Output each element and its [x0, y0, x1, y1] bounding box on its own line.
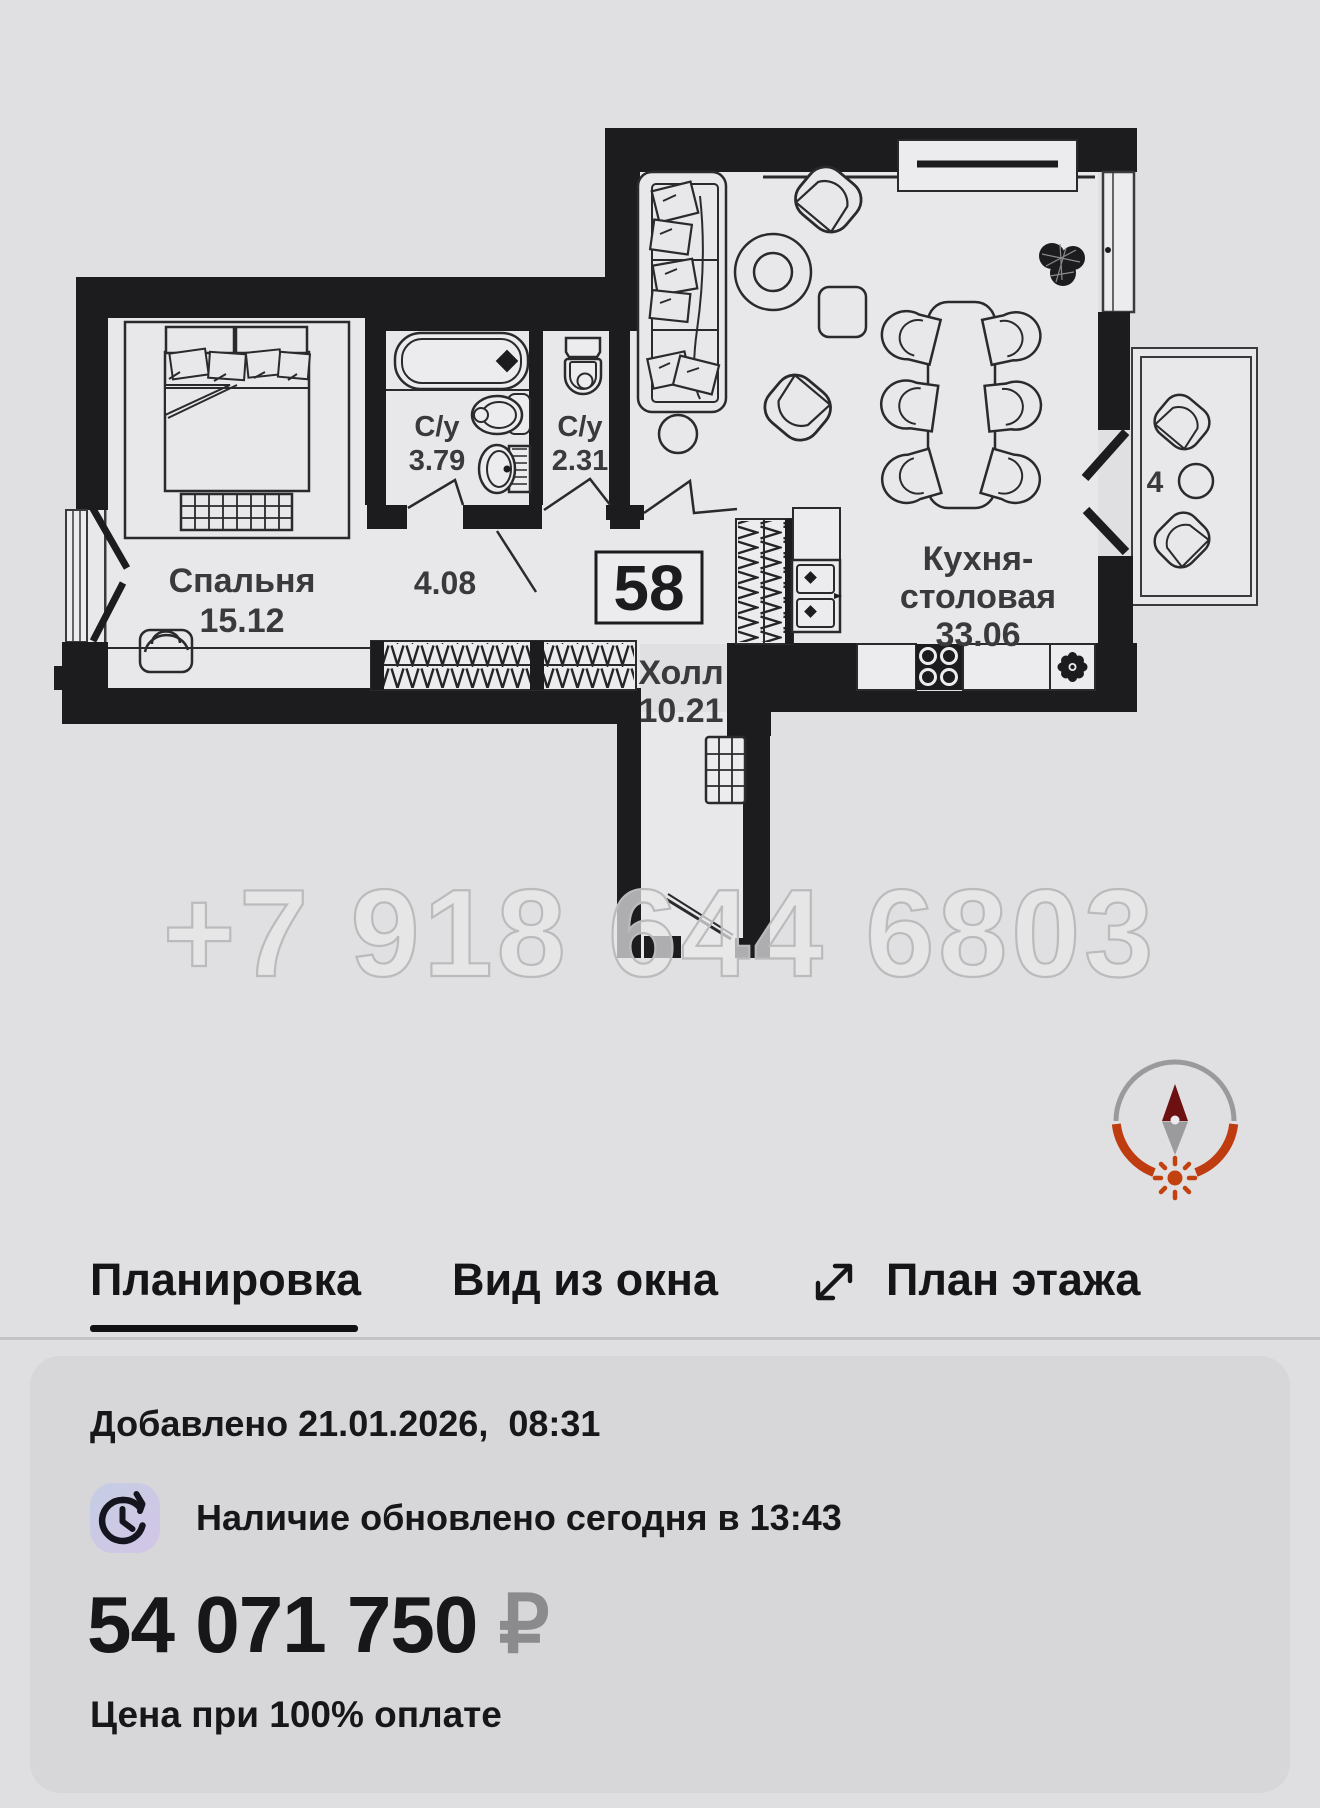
- svg-text:15.12: 15.12: [199, 602, 284, 640]
- svg-text:33.06: 33.06: [935, 616, 1020, 654]
- svg-text:+7 918 644 6803: +7 918 644 6803: [163, 865, 1157, 1003]
- svg-text:Холл: Холл: [638, 654, 723, 692]
- svg-text:Кухня-: Кухня-: [923, 540, 1034, 578]
- svg-text:4: 4: [1147, 466, 1164, 499]
- svg-text:столовая: столовая: [900, 578, 1056, 616]
- svg-text:С/у: С/у: [557, 411, 602, 443]
- svg-text:3.79: 3.79: [409, 445, 465, 477]
- svg-text:10.21: 10.21: [638, 692, 723, 730]
- svg-text:С/у: С/у: [414, 411, 459, 443]
- svg-text:4.08: 4.08: [414, 565, 476, 601]
- svg-text:Спальня: Спальня: [169, 562, 316, 600]
- svg-text:58: 58: [613, 552, 684, 624]
- svg-text:2.31: 2.31: [552, 445, 608, 477]
